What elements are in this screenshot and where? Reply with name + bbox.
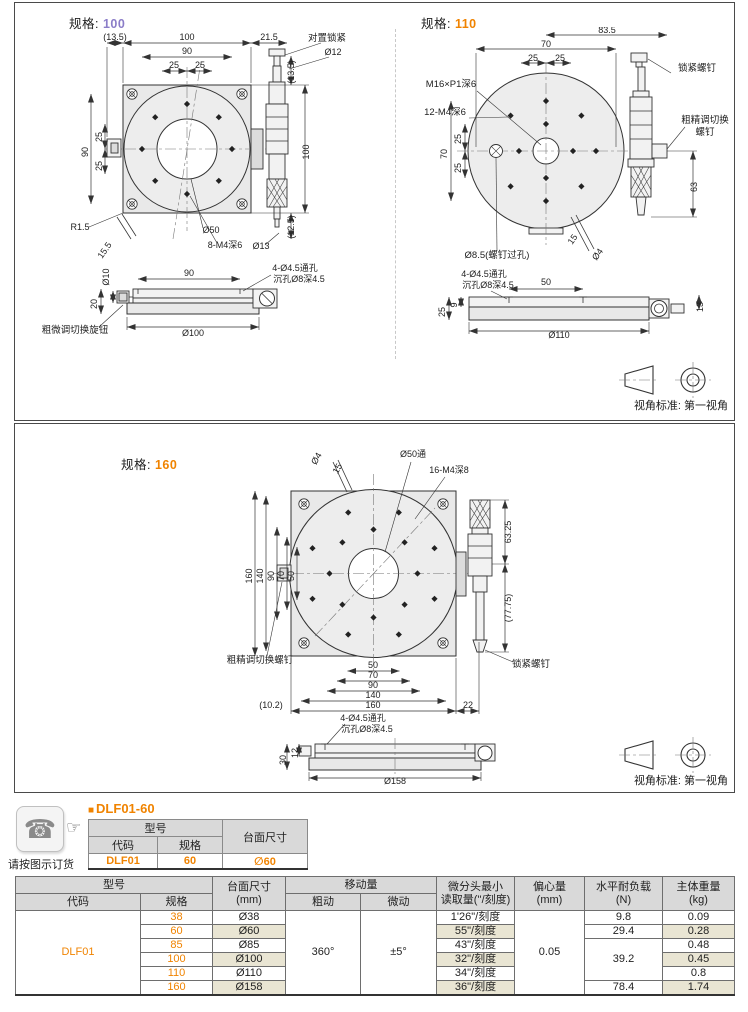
dim-label: 50 (541, 277, 551, 287)
cell-load: 39.2 (585, 939, 663, 981)
order-spec-value: 60 (158, 854, 223, 870)
first-angle-symbol: 视角标准: 第一视角 (611, 361, 748, 411)
first-angle-symbol: 视角标准: 第一视角 (611, 736, 748, 786)
dim-label: 90 (184, 268, 194, 278)
dim-label: 90 (182, 46, 192, 56)
col-load: 水平耐负载 (N) (585, 877, 663, 911)
dim-label: Ø50 (202, 225, 219, 235)
order-col-size: 台面尺寸 (223, 820, 308, 854)
spec-110-drawing: 83.5702525M16×P1深612-M4深6锁紧螺钉粗精调切换螺钉7025… (399, 27, 744, 412)
col-table-size-l1: 台面尺寸 (213, 881, 285, 893)
dim-label: 16-M4深8 (429, 465, 469, 475)
dim-label: 粗精调切换 (681, 114, 729, 126)
col-table-size: 台面尺寸 (mm) (213, 877, 286, 911)
dim-label: 沉孔Ø8深4.5 (462, 280, 514, 290)
dim-label: 70 (439, 149, 449, 159)
cell-spec: 38 (141, 911, 213, 925)
dim-label: 70 (276, 571, 286, 581)
col-load-l2: (N) (585, 894, 662, 906)
cell-size: Ø100 (213, 953, 286, 967)
dim-label: 9 (449, 302, 459, 307)
dim-label: 25 (94, 132, 104, 142)
col-spec: 规格 (141, 894, 213, 911)
dim-label: Ø100 (182, 328, 204, 338)
col-code: 代码 (16, 894, 141, 911)
cell-weight: 1.74 (663, 981, 735, 996)
dim-label: 50 (368, 660, 378, 670)
cell-reading: 1'26"/刻度 (437, 911, 515, 925)
dim-label: 90 (80, 147, 90, 157)
dim-label: Ø8.5(螺钉过孔) (465, 249, 530, 261)
dim-label: 25 (453, 134, 463, 144)
dim-label: Ø4 (590, 246, 605, 262)
dim-label: 25 (94, 161, 104, 171)
cell-reading: 36"/刻度 (437, 981, 515, 996)
dim-label: Ø13 (252, 241, 269, 251)
cell-load: 29.4 (585, 925, 663, 939)
cell-weight: 0.45 (663, 953, 735, 967)
cell-fine: ±5° (361, 911, 437, 996)
dim-label: 12 (290, 748, 300, 758)
dim-label: 160 (244, 568, 254, 583)
bullet-icon: ■ (88, 805, 94, 816)
phone-order-icon: ☎ (16, 806, 64, 852)
order-col-model: 型号 (89, 820, 223, 837)
dim-label: 对置锁紧 (308, 32, 346, 44)
dim-label: 160 (365, 700, 380, 710)
cell-code: DLF01 (16, 911, 141, 996)
dim-label: 50 (286, 571, 296, 581)
dim-label: Ø158 (384, 776, 406, 786)
catalog-page: { "colors":{"accent_orange":"#f08300","a… (0, 0, 748, 1012)
table-row: DLF01 38 Ø38 360° ±5° 1'26"/刻度 0.05 9.8 … (16, 911, 735, 925)
dim-label: Ø50通 (400, 449, 426, 459)
col-load-l1: 水平耐负载 (585, 881, 662, 893)
order-example-title: ■DLF01-60 (88, 801, 155, 816)
dim-label: 25 (437, 307, 447, 317)
order-col-spec: 规格 (158, 837, 223, 854)
dim-label: 63.25 (503, 521, 513, 544)
pointing-finger-icon: ☞ (66, 818, 81, 838)
col-micrometer-l2: 读取量(''/刻度) (437, 894, 514, 906)
dim-label: 4-Ø4.5通孔 (272, 263, 318, 273)
cell-load: 78.4 (585, 981, 663, 996)
dim-label: Ø10 (101, 268, 111, 285)
col-table-size-l2: (mm) (213, 894, 285, 906)
dim-label: R1.5 (70, 222, 89, 232)
cell-reading: 55"/刻度 (437, 925, 515, 939)
dim-label: 22 (463, 700, 473, 710)
order-col-code: 代码 (89, 837, 158, 854)
dim-label: (13.5) (103, 32, 127, 42)
cell-weight: 0.28 (663, 925, 735, 939)
spec-table: 型号 台面尺寸 (mm) 移动量 微分头最小 读取量(''/刻度) 偏心量 (m… (15, 876, 735, 996)
dim-label: 21.5 (260, 32, 278, 42)
col-weight-l2: (kg) (663, 894, 734, 906)
col-micrometer: 微分头最小 读取量(''/刻度) (437, 877, 515, 911)
order-example-table: 型号 台面尺寸 代码 规格 DLF01 60 ∅60 (88, 819, 308, 870)
view-standard-note: 视角标准: 第一视角 (634, 398, 728, 411)
dim-label: (12.5) (286, 215, 296, 239)
dim-label: 12-M4深6 (424, 107, 466, 118)
dim-label: 70 (368, 670, 378, 680)
dim-label: 8-M4深6 (208, 240, 243, 250)
cell-load: 9.8 (585, 911, 663, 925)
dim-label: 140 (255, 568, 265, 583)
dim-label: 90 (368, 680, 378, 690)
drawing-panel-100-110: 规格: 100 规格: 110 (14, 2, 735, 421)
dim-label: 锁紧螺钉 (678, 62, 717, 74)
dim-label: 25 (528, 53, 538, 63)
cell-size: Ø85 (213, 939, 286, 953)
dim-label: 25 (555, 53, 565, 63)
dim-label: 100 (301, 144, 311, 159)
dim-label: 15 (331, 462, 345, 476)
col-travel: 移动量 (286, 877, 437, 894)
dim-label: M16×P1深6 (426, 79, 476, 90)
cell-reading: 32"/刻度 (437, 953, 515, 967)
dim-label: 13 (695, 302, 705, 312)
cell-weight: 0.09 (663, 911, 735, 925)
col-eccentricity: 偏心量 (mm) (515, 877, 585, 911)
cell-size: Ø60 (213, 925, 286, 939)
order-code-value: DLF01 (89, 854, 158, 870)
view-standard-note: 视角标准: 第一视角 (634, 773, 728, 786)
dim-label: 粗精调切换螺钉 (227, 654, 294, 666)
dim-label: Ø12 (324, 47, 341, 57)
dim-label: 25 (195, 60, 205, 70)
col-model: 型号 (16, 877, 213, 894)
cell-spec: 110 (141, 967, 213, 981)
dim-label: 15 (566, 232, 580, 246)
cell-coarse: 360° (286, 911, 361, 996)
cell-size: Ø158 (213, 981, 286, 996)
dim-label: 25 (453, 163, 463, 173)
dim-label: (77.75) (503, 594, 513, 623)
cell-weight: 0.48 (663, 939, 735, 953)
cell-reading: 43"/刻度 (437, 939, 515, 953)
dim-label: 100 (179, 32, 194, 42)
cell-reading: 34"/刻度 (437, 967, 515, 981)
dim-label: (13.5) (286, 60, 296, 84)
order-size-value: ∅60 (223, 854, 308, 870)
cell-spec: 60 (141, 925, 213, 939)
order-note: 请按图示订货 (8, 856, 74, 872)
col-coarse: 粗动 (286, 894, 361, 911)
dim-label: 4-Ø4.5通孔 (461, 269, 507, 279)
dim-label: 15.5 (95, 240, 113, 260)
col-eccentricity-l1: 偏心量 (515, 881, 584, 893)
col-weight-l1: 主体重量 (663, 881, 734, 893)
dim-label: (10.2) (259, 700, 283, 710)
dim-label: 粗微调切换旋钮 (42, 324, 109, 336)
dim-label: 63 (689, 182, 699, 192)
dim-label: 30 (278, 755, 288, 765)
dim-label: 140 (365, 690, 380, 700)
dim-label: 25 (169, 60, 179, 70)
dim-label: 沉孔Ø8深4.5 (273, 274, 325, 284)
dim-label: 4-Ø4.5通孔 (340, 713, 386, 723)
cell-weight: 0.8 (663, 967, 735, 981)
drawing-panel-160: 规格: 160 (14, 423, 735, 793)
order-example-code: DLF01-60 (96, 801, 155, 816)
phone-icon: ☎ (24, 814, 56, 845)
dim-label: 锁紧螺钉 (512, 658, 551, 670)
dim-label: 20 (89, 299, 99, 309)
cell-spec: 100 (141, 953, 213, 967)
dim-label: 90 (266, 571, 276, 581)
col-eccentricity-l2: (mm) (515, 894, 584, 906)
cell-eccentricity: 0.05 (515, 911, 585, 996)
col-fine: 微动 (361, 894, 437, 911)
spec-100-drawing: (13.5)10021.5902525对置锁紧Ø12902525(13.5)10… (33, 27, 393, 412)
cell-spec: 160 (141, 981, 213, 996)
col-weight: 主体重量 (kg) (663, 877, 735, 911)
dim-label: 螺钉 (695, 127, 715, 138)
dim-label: Ø110 (548, 330, 569, 340)
dim-label: Ø4 (309, 451, 324, 466)
dim-label: 83.5 (598, 27, 616, 35)
dim-label: 70 (541, 39, 551, 49)
dim-label: 沉孔Ø8深4.5 (341, 724, 393, 734)
cell-size: Ø38 (213, 911, 286, 925)
panel-divider (395, 29, 396, 359)
cell-size: Ø110 (213, 967, 286, 981)
cell-spec: 85 (141, 939, 213, 953)
col-micrometer-l1: 微分头最小 (437, 881, 514, 893)
